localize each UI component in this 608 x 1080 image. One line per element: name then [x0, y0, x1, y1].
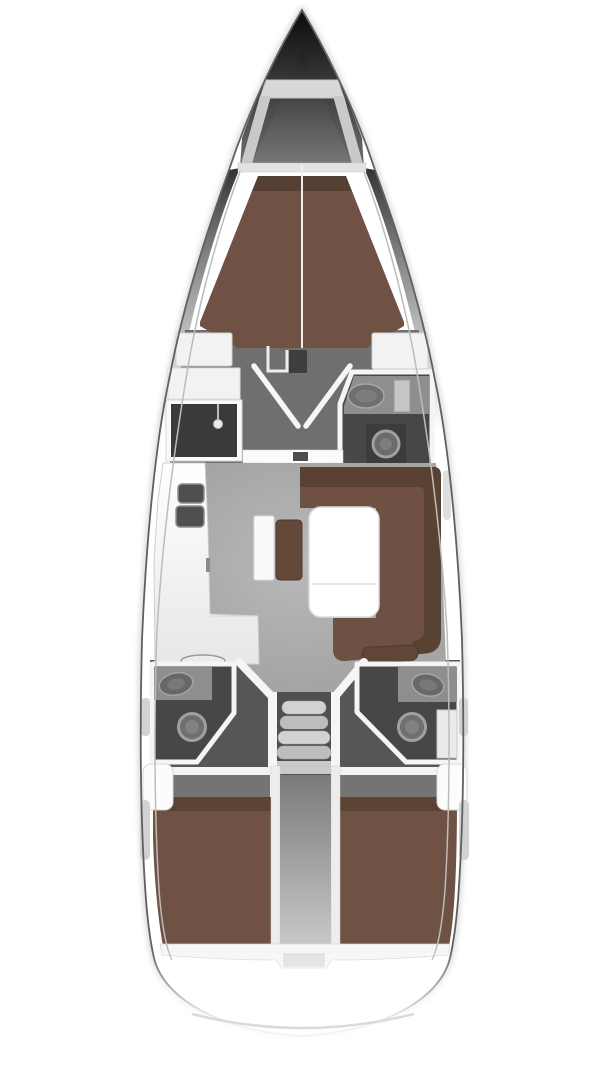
step-3: [278, 731, 330, 744]
forward-head: [340, 372, 432, 466]
aft-head-starboard-toilet-bowl: [405, 720, 419, 734]
side-accent-port-1: [141, 698, 150, 736]
settee-cushion: [362, 645, 419, 664]
forward-head-sink-bowl: [355, 390, 377, 403]
aft-head-starboard-cabinet: [437, 710, 457, 758]
steps-wall-port: [268, 692, 277, 776]
step-2: [280, 716, 328, 729]
aft-berth-port: [153, 797, 271, 946]
table-top: [309, 507, 379, 617]
bow-platform: [260, 80, 344, 98]
galley-sink-1: [178, 484, 204, 503]
stool: [276, 520, 302, 580]
locker-starboard: [372, 333, 428, 369]
engine-compartment: [280, 775, 331, 947]
galley-sink-2: [176, 506, 204, 527]
dining-table: [309, 507, 379, 617]
floor-plan-svg: [0, 0, 608, 1080]
galley-handle: [206, 558, 210, 572]
steps-landing: [277, 761, 331, 774]
aft-berth-starboard: [339, 797, 457, 946]
step-1: [282, 701, 326, 714]
steps-wall-starboard: [331, 692, 340, 776]
stern-fade: [110, 948, 500, 1080]
aft-head-port-toilet-bowl: [185, 720, 199, 734]
door-panel: [289, 350, 307, 373]
sideboard: [254, 516, 274, 580]
engine-wall-port: [271, 766, 280, 948]
locker-port: [176, 333, 232, 366]
engine-wall-starboard: [331, 766, 340, 948]
shower-head-icon: [214, 420, 223, 429]
forward-head-cabinet: [394, 380, 410, 412]
companionway-steps: [268, 692, 340, 776]
step-4: [277, 746, 331, 759]
yacht-floor-plan: [0, 0, 608, 1080]
forward-head-toilet-bowl: [380, 438, 392, 450]
shelf-port: [168, 368, 240, 399]
